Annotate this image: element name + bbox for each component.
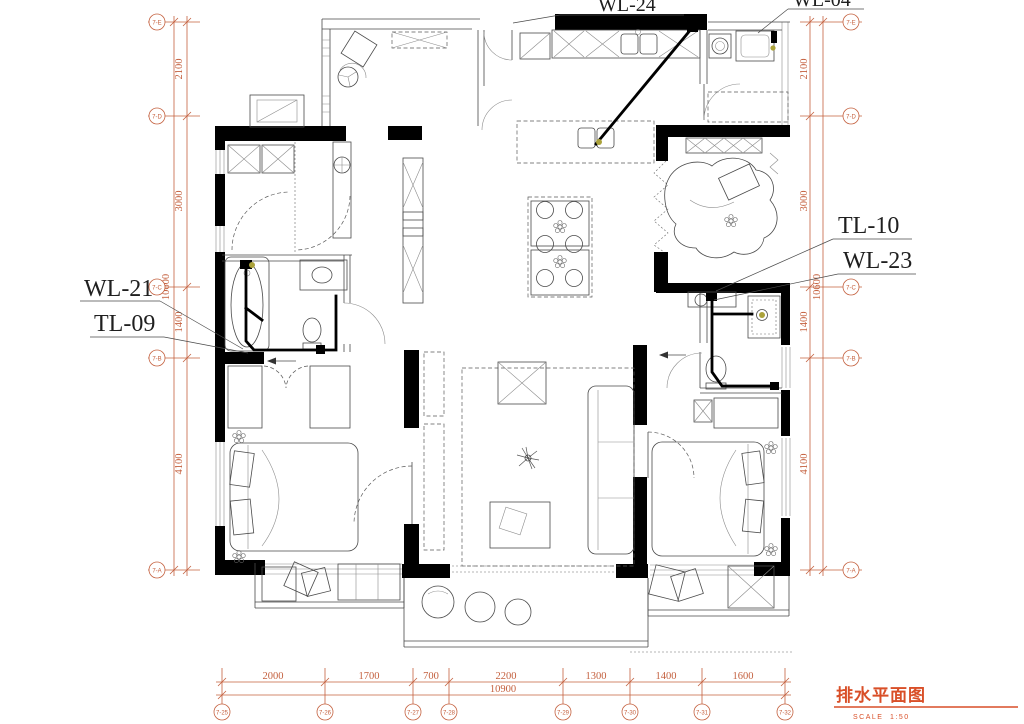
svg-text:WL-23: WL-23 — [843, 248, 912, 274]
dim-bottom-1: 1700 — [359, 671, 380, 682]
dressing-room — [228, 142, 351, 238]
dim-bottom-total: 10900 — [490, 684, 516, 695]
dim-left-3: 4100 — [174, 454, 185, 475]
grid-bubble: 7-26 — [319, 711, 332, 717]
dim-right-1: 3000 — [799, 191, 810, 212]
window-right-1 — [782, 347, 790, 388]
dining-area — [528, 197, 592, 297]
wall-layer — [213, 14, 790, 578]
scale-value: 1:50 — [890, 714, 910, 721]
dim-right-0: 2100 — [799, 59, 810, 80]
dim-bottom-5: 1400 — [656, 671, 677, 682]
grid-bubble: 7-D — [846, 115, 856, 121]
svg-text:WL-04: WL-04 — [793, 0, 851, 11]
window-left-3 — [213, 442, 227, 526]
bottom-left-bedroom — [228, 366, 412, 563]
grid-bubble: 7-B — [846, 357, 855, 363]
structure-thin — [222, 19, 792, 652]
utility-room — [708, 31, 788, 122]
grid-bubble: 7-31 — [696, 711, 709, 717]
grid-bubble: 7-29 — [557, 711, 570, 717]
dim-bottom-4: 1300 — [586, 671, 607, 682]
dim-left-0: 2100 — [174, 59, 185, 80]
dim-bottom-0: 2000 — [263, 671, 284, 682]
grid-bubble: 7-E — [152, 21, 161, 27]
drawing-title: 排水平面图 — [836, 685, 926, 706]
bottom-right-bedroom — [648, 398, 778, 556]
utility-drain-point — [770, 45, 775, 50]
window-bottom-left — [265, 564, 402, 574]
flow-arrow-right — [659, 352, 686, 359]
drainage-plan-sheet: 2100 3000 1400 4100 10600 2100 3000 1400… — [0, 0, 1024, 724]
top-right-bedroom — [665, 138, 778, 258]
svg-text:TL-10: TL-10 — [838, 213, 899, 239]
grid-bubble: 7-C — [846, 286, 856, 292]
grid-bubble: 7-27 — [407, 711, 420, 717]
scale-label: SCALE — [853, 714, 883, 721]
living-room — [424, 352, 634, 566]
window-left-2 — [213, 226, 227, 252]
dim-left-1: 3000 — [174, 191, 185, 212]
pipe-labels: WL-24 WL-04 WL-21 TL-09 TL-10 WL-23 — [80, 0, 916, 353]
floor-plan-canvas: 2100 3000 1400 4100 10600 2100 3000 1400… — [0, 0, 1024, 724]
svg-text:TL-09: TL-09 — [94, 311, 155, 337]
bottom-left-balcony — [262, 562, 400, 601]
left-bathroom — [225, 257, 347, 351]
balcony-slider — [452, 566, 615, 572]
pipe-layer — [240, 21, 779, 390]
grid-bubble: 7-A — [152, 569, 161, 575]
grid-bubble: 7-D — [152, 115, 162, 121]
grid-bubble: 7-32 — [779, 711, 792, 717]
grid-bubble: 7-E — [846, 21, 855, 27]
window-left-1 — [213, 150, 227, 174]
svg-text:WL-24: WL-24 — [598, 0, 656, 16]
title-block: 排水平面图 SCALE 1:50 — [834, 685, 1018, 721]
center-balcony — [422, 586, 531, 625]
flow-arrow-left — [267, 358, 296, 365]
dim-bottom-6: 1600 — [733, 671, 754, 682]
study-room — [338, 31, 447, 87]
grid-bubble: 7-25 — [216, 711, 229, 717]
window-right-2 — [782, 438, 790, 516]
grid-bubble: 7-28 — [443, 711, 456, 717]
dim-right-2: 1400 — [799, 312, 810, 333]
window-right-top — [782, 22, 788, 125]
right-bath-drain-pipe — [659, 293, 779, 390]
dim-right-3: 4100 — [799, 454, 810, 475]
right-bathroom — [688, 292, 780, 389]
dim-bottom-2: 700 — [423, 671, 439, 682]
furniture-layer — [225, 30, 788, 626]
dim-bottom-3: 2200 — [496, 671, 517, 682]
grid-bubble: 7-30 — [624, 711, 637, 717]
grid-bubble: 7-C — [152, 286, 162, 292]
grid-bubble: 7-B — [152, 357, 161, 363]
svg-text:WL-21: WL-21 — [84, 276, 153, 302]
grid-bubble: 7-A — [846, 569, 855, 575]
window-bottom-right — [650, 565, 754, 575]
left-bath-drain-pipe — [240, 260, 336, 365]
